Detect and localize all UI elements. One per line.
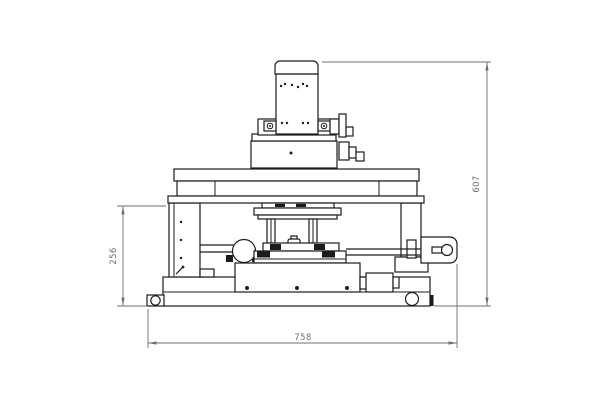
focus-knob-lower xyxy=(339,142,364,161)
stage-clamp xyxy=(270,244,281,250)
optics-assembly xyxy=(254,203,341,244)
bridge-table xyxy=(168,169,424,203)
riser-hole xyxy=(290,152,293,155)
stage-motor xyxy=(366,273,393,292)
arrowhead-left xyxy=(148,341,157,344)
arrowhead-right xyxy=(449,341,458,344)
mount-clamp xyxy=(296,204,306,207)
left-foot-bolt xyxy=(151,296,160,305)
saddle-hole xyxy=(295,286,299,290)
technical-drawing-canvas: 607 256 758 xyxy=(0,0,600,400)
arrowhead-up xyxy=(485,62,488,71)
arrowhead-down xyxy=(121,298,124,307)
optics-plate-lip xyxy=(258,215,337,219)
focus-knob-upper xyxy=(330,114,353,137)
bracket-screw-right-dot xyxy=(323,125,325,127)
column-hole xyxy=(180,239,182,241)
left-column xyxy=(169,203,214,277)
stage-clamp xyxy=(322,252,335,258)
measuring-head xyxy=(251,61,364,168)
dimension-label-256: 256 xyxy=(109,247,119,264)
right-foot-bolt xyxy=(406,293,419,306)
head-riser-block xyxy=(251,141,337,168)
saddle-hole xyxy=(345,286,349,290)
camera-cap xyxy=(275,61,318,74)
clamp-lever-tip xyxy=(182,266,185,269)
right-column xyxy=(395,203,457,272)
table-bottom-plate xyxy=(168,196,424,203)
saddle-hole xyxy=(245,286,249,290)
table-mid-band xyxy=(177,181,417,196)
base-right-notch xyxy=(430,295,434,306)
camera-body xyxy=(276,74,318,134)
motor-endcap xyxy=(393,277,399,288)
stage-clamp xyxy=(257,252,270,258)
bracket-screw-left-dot xyxy=(269,125,271,127)
mount-clamp xyxy=(275,204,285,207)
optics-plate xyxy=(254,208,341,215)
dimension-label-607: 607 xyxy=(472,175,482,192)
handwheel xyxy=(233,240,256,263)
arrowhead-down xyxy=(485,298,488,307)
drive-knob xyxy=(442,245,453,256)
table-top-band xyxy=(174,169,419,181)
column-hole xyxy=(180,257,182,259)
wheel-bearing-left xyxy=(226,255,233,262)
dimension-label-758: 758 xyxy=(294,333,311,343)
stage-clamp xyxy=(314,244,325,250)
column-hole xyxy=(180,221,182,223)
column-base-step xyxy=(200,269,214,277)
drive-shaft xyxy=(432,247,442,253)
arrowhead-up xyxy=(121,206,124,215)
dimension-working-height: 256 xyxy=(109,206,166,306)
technical-drawing-page: 607 256 758 xyxy=(0,0,600,400)
